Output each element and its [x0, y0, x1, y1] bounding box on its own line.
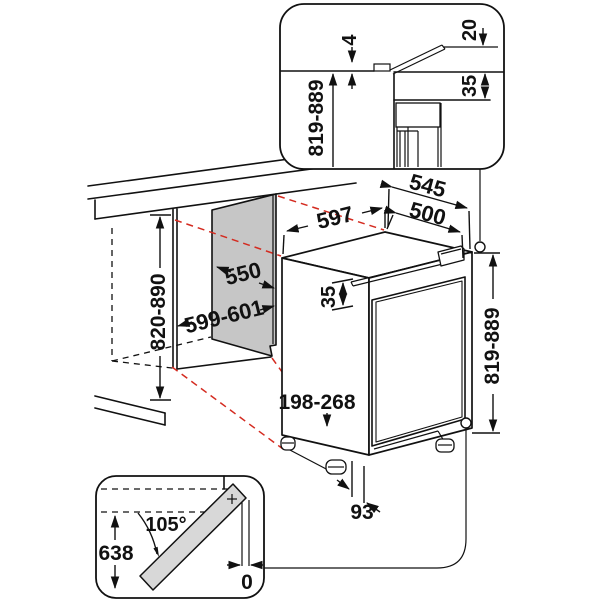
dim-niche-height: 820-890 — [147, 215, 171, 400]
dim-appliance-height: 819-889 — [472, 253, 504, 433]
dim-inset-top-clearance-label: 35 — [459, 75, 481, 97]
diagram-canvas: 820-890 550 599-601 597 545 500 35 — [0, 0, 600, 600]
dim-niche-height-label: 820-890 — [147, 273, 170, 350]
foot-rear-left — [281, 437, 295, 450]
installation-diagram: 820-890 550 599-601 597 545 500 35 — [0, 0, 600, 600]
dim-flap-height-label: 20 — [459, 19, 481, 41]
dim-plinth-recess-label: 93 — [350, 501, 373, 524]
dim-top-clearance-label: 35 — [318, 286, 340, 308]
foot-front-left — [326, 460, 346, 474]
appliance-door — [372, 277, 465, 446]
appliance — [281, 232, 472, 474]
dim-appliance-height-label: 819-889 — [481, 307, 504, 384]
dim-side-clearance-label: 0 — [241, 571, 253, 594]
dim-worktop-gap-label: 4 — [339, 34, 361, 46]
detail-inset-top: 4 20 819-889 35 — [280, 4, 504, 169]
callout-circle-bottom — [461, 418, 471, 428]
dim-opening-angle-label: 105° — [145, 514, 186, 536]
detail-inset-door-swing: 105° 638 0 — [96, 476, 264, 598]
dim-plinth-height-label: 198-268 — [278, 391, 355, 414]
dim-appliance-width-label: 597 — [314, 201, 356, 234]
dim-inset-niche-height-label: 819-889 — [305, 79, 328, 156]
callout-circle-top — [475, 242, 485, 252]
dim-door-swing-label: 638 — [98, 542, 133, 565]
foot-front-right — [436, 439, 454, 452]
